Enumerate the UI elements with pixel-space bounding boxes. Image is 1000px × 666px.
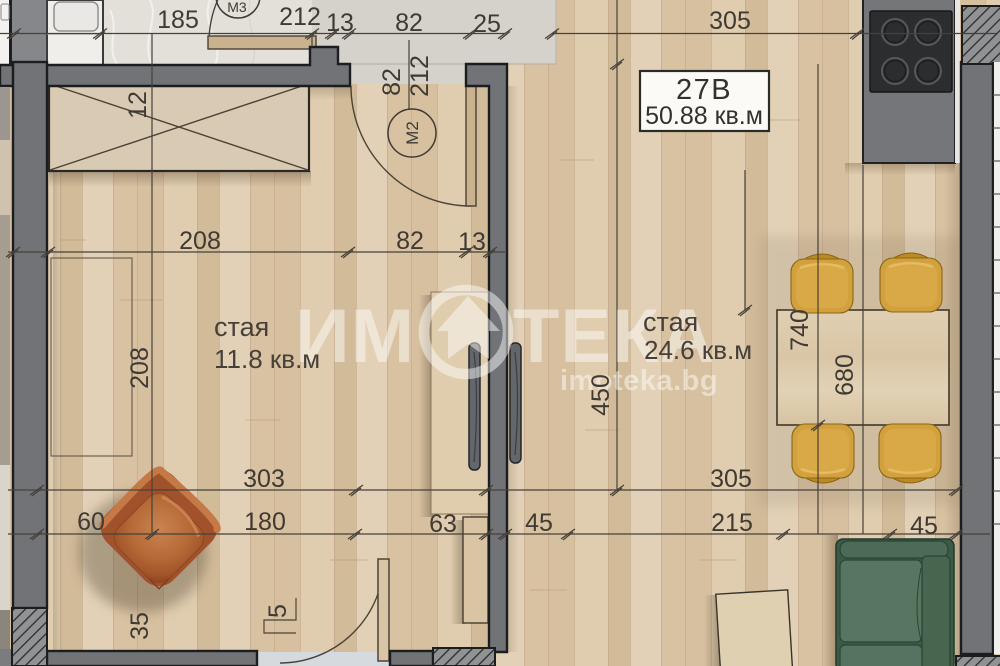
svg-text:82: 82 (396, 227, 424, 255)
svg-text:60: 60 (77, 508, 105, 536)
svg-text:25: 25 (473, 10, 501, 38)
svg-text:450: 450 (587, 374, 615, 416)
svg-text:45: 45 (525, 509, 553, 537)
svg-text:212: 212 (406, 55, 434, 97)
svg-text:63: 63 (429, 510, 457, 538)
svg-text:12: 12 (124, 91, 152, 119)
svg-text:215: 215 (711, 509, 753, 537)
svg-text:50.88 кв.м: 50.88 кв.м (645, 102, 763, 130)
svg-text:180: 180 (244, 508, 286, 536)
svg-text:11.8 кв.м: 11.8 кв.м (214, 344, 320, 374)
svg-text:5: 5 (264, 604, 292, 618)
svg-text:208: 208 (126, 347, 154, 389)
svg-text:М2: М2 (403, 121, 422, 145)
svg-text:13: 13 (326, 9, 354, 37)
svg-text:303: 303 (243, 465, 285, 493)
svg-text:М3: М3 (227, 0, 247, 15)
svg-text:24.6 кв.м: 24.6 кв.м (644, 335, 752, 365)
svg-text:680: 680 (831, 354, 859, 396)
svg-text:740: 740 (786, 309, 814, 351)
svg-text:212: 212 (279, 3, 321, 31)
svg-text:45: 45 (910, 512, 938, 540)
svg-text:208: 208 (179, 227, 221, 255)
svg-text:305: 305 (710, 465, 752, 493)
svg-text:13: 13 (458, 228, 486, 256)
svg-text:82: 82 (378, 68, 406, 96)
svg-text:стая: стая (643, 307, 698, 337)
svg-text:стая: стая (214, 312, 269, 342)
svg-text:35: 35 (126, 612, 154, 640)
svg-text:185: 185 (157, 6, 199, 34)
svg-text:imoteka.bg: imoteka.bg (560, 365, 718, 397)
svg-text:82: 82 (395, 9, 423, 37)
svg-text:305: 305 (709, 7, 751, 35)
